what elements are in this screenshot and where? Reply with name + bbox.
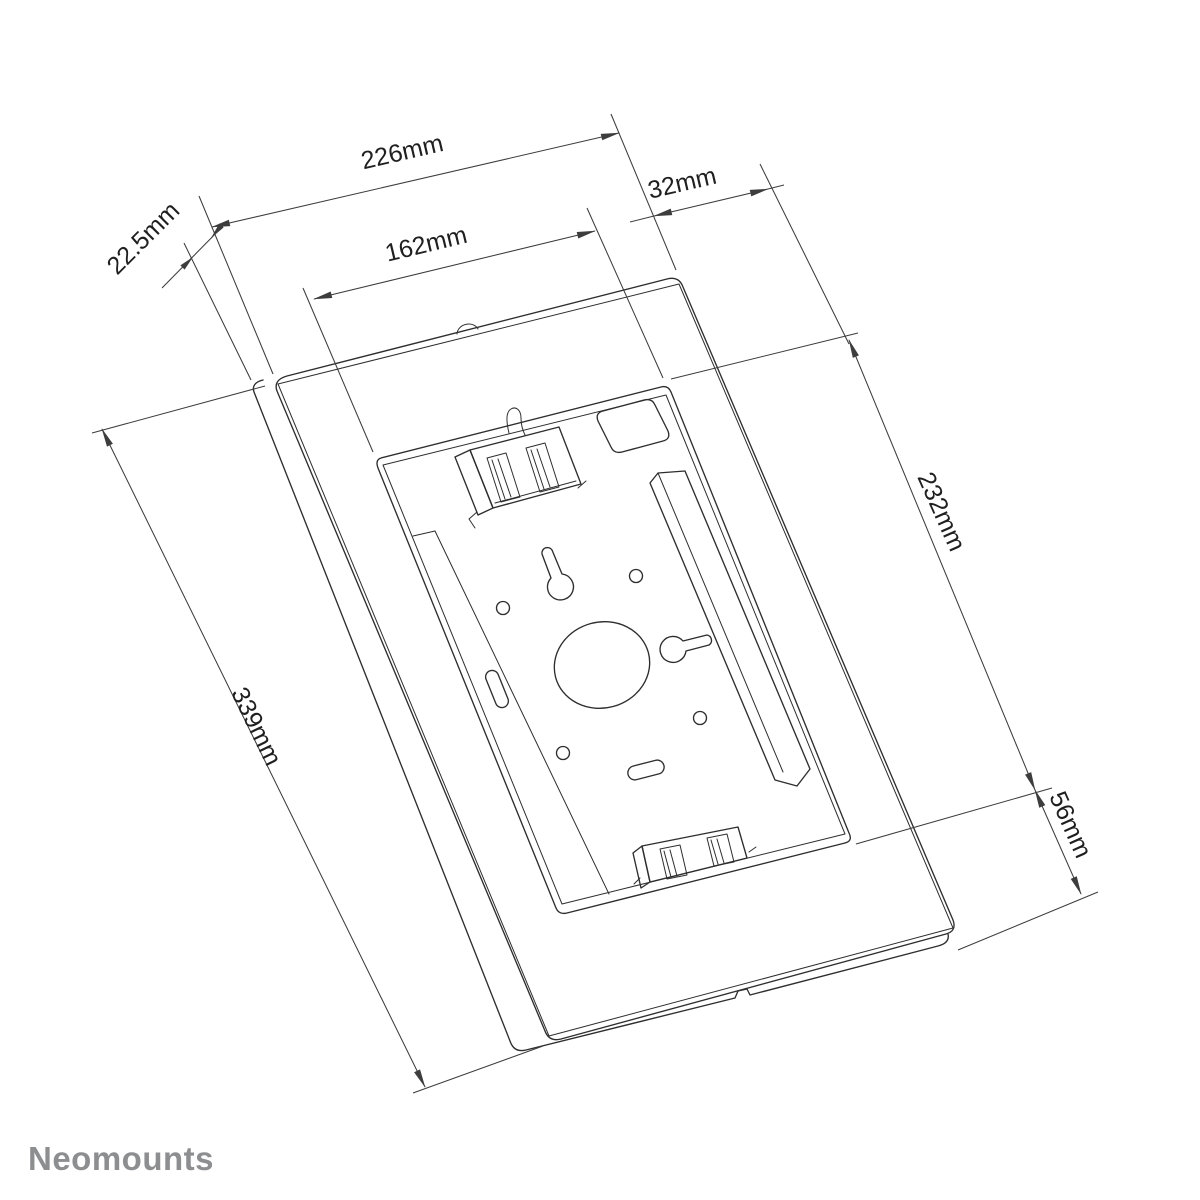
security-bar-left-edge	[435, 531, 609, 894]
security-bar-right-body	[650, 471, 810, 786]
dimension-32: 32mm	[630, 162, 849, 344]
bottom-clip-foot	[634, 847, 756, 884]
front-face-outline	[276, 278, 954, 1039]
slot-hole-bottom	[626, 759, 665, 782]
top-clip	[455, 408, 586, 528]
corner-cutout-hole	[597, 400, 669, 453]
dim-bezel-lip-label: 22.5mm	[102, 197, 186, 281]
brand-logo: Neomounts	[28, 1141, 214, 1177]
dimension-annotations: 226mm 162mm 32mm	[92, 114, 1098, 1093]
bottom-clip-side-face	[633, 846, 650, 888]
dim-side-offset-label: 32mm	[645, 162, 719, 205]
security-bar-left-cap	[413, 531, 435, 536]
slot-hole-left	[484, 668, 511, 709]
top-clip-rail-slot	[492, 459, 511, 499]
technical-drawing-page: 226mm 162mm 32mm	[0, 0, 1200, 1200]
security-bar-right	[650, 471, 810, 786]
window-rim	[377, 387, 850, 914]
security-bar-left	[413, 531, 609, 894]
enclosure-technical-drawing: 226mm 162mm 32mm	[0, 0, 1200, 1200]
top-edge-notch	[457, 324, 478, 334]
dimension-339: 339mm	[92, 386, 543, 1093]
screw-hole	[557, 747, 570, 760]
dim-total-width-label: 226mm	[358, 129, 446, 175]
center-cable-hole	[545, 611, 660, 719]
enclosure-body	[253, 278, 954, 1050]
dimension-162: 162mm	[303, 208, 663, 452]
dimension-232: 232mm	[671, 333, 1052, 844]
screw-hole	[497, 602, 510, 615]
dim-total-height-label: 339mm	[225, 683, 287, 770]
window-opening	[383, 395, 845, 904]
screw-hole	[694, 712, 707, 725]
keyhole-slot-top	[542, 548, 574, 600]
screw-hole	[630, 570, 643, 583]
dim-window-width-label: 162mm	[382, 221, 470, 268]
bottom-clip	[633, 827, 756, 888]
keyhole-slot-right	[660, 635, 711, 662]
dimension-56: 56mm	[958, 787, 1098, 950]
dimension-22-5: 22.5mm	[102, 197, 251, 380]
front-face-edge-highlight	[278, 284, 953, 1036]
bottom-clip-front-face	[642, 827, 747, 882]
dim-depth-label: 56mm	[1043, 787, 1097, 862]
top-clip-rail-slot	[531, 449, 550, 489]
